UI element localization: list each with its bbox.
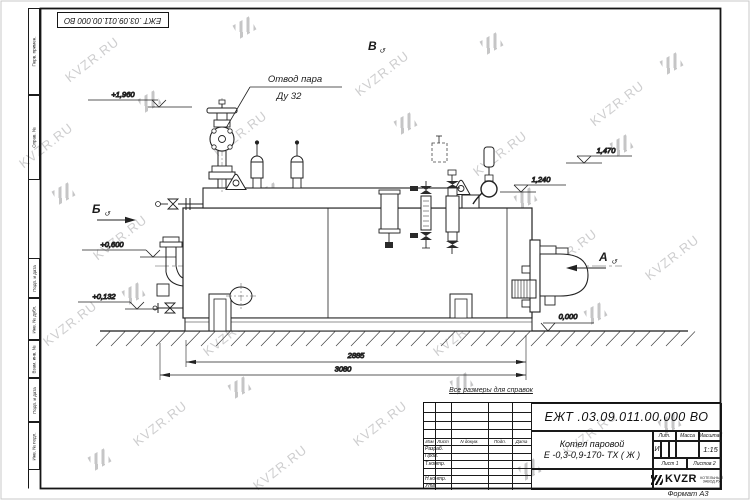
level-column-2 — [446, 170, 459, 254]
row-razrab: Разраб. — [424, 445, 451, 453]
burner-housing — [540, 254, 588, 296]
frame-box-inv-dubl: Инв. № дубл. — [28, 298, 40, 340]
support-leg-left — [209, 294, 231, 331]
top-designation-text: ЕЖТ .03.09.011.00.000 ВО — [64, 16, 161, 25]
svg-text:А: А — [598, 250, 608, 264]
view-marker-b-top: В ↺ — [368, 39, 386, 55]
sheet-cell: Лист 1 — [653, 458, 687, 469]
frame-box-perv-primen: Перв. примен. — [28, 8, 40, 95]
svg-text:+0,132: +0,132 — [92, 292, 116, 301]
company-logo: KVZR КОТЕЛЬНЫЙЗАВОД.РУ — [653, 469, 722, 490]
frame-box-vzam-inv: Взам. инв. № — [28, 340, 40, 378]
title-block-designation: ЕЖТ .03.09.011.00.000 ВО — [531, 403, 722, 431]
mass-value — [676, 441, 699, 458]
drain-valve — [153, 303, 183, 313]
rotated-view-icon: ↺ — [104, 211, 111, 218]
dimension-3080-value: 3080 — [335, 365, 353, 374]
col-ndocum: N докум. — [451, 438, 488, 445]
scale-value: 1:15 — [699, 441, 722, 458]
frame-box-inv-podl: Инв. № подл. — [28, 422, 40, 470]
elevation-mark-right-high: 1,470 — [566, 146, 632, 163]
col-izm: Изм — [424, 438, 435, 445]
top-designation-box: ЕЖТ .03.09.011.00.000 ВО — [57, 12, 169, 28]
siphon-loop — [481, 181, 497, 197]
elevation-mark-right-mid: 1,240 — [500, 175, 566, 192]
empty-cell — [531, 469, 653, 490]
format-label: Формат А3 — [648, 489, 728, 498]
view-arrow-right-icon — [125, 217, 136, 223]
safety-valve-2 — [291, 141, 303, 188]
steam-outlet-label: Отвод пара Ду 32 — [226, 74, 342, 128]
col-podp: Подп. — [488, 438, 512, 445]
frame-box-podp-data-1: Подп. и дата — [28, 258, 40, 298]
elevation-mark-left-low: +0,132 — [78, 292, 158, 309]
svg-text:1,240: 1,240 — [532, 175, 552, 184]
svg-text:Отвод пара: Отвод пара — [268, 74, 322, 85]
burner-mount-plate — [530, 240, 540, 312]
rotated-view-icon: ↺ — [611, 259, 618, 266]
top-shoulder — [462, 195, 479, 208]
view-marker-b-left: Б ↺ — [92, 202, 136, 223]
scale-header: Масштаб — [699, 431, 722, 441]
drawing-sheet: KVZR.RUKVZR.RUKVZR.RUKVZR.RUKVZR.RUKVZR.… — [0, 0, 750, 500]
dimension-3080: 3080 — [160, 343, 526, 380]
sheets-cell: Листов 2 — [687, 458, 722, 469]
lit-value: И — [653, 441, 661, 458]
base-skid — [185, 318, 532, 331]
reference-note: Все размеры для справок — [430, 387, 552, 394]
support-leg-right — [450, 294, 472, 318]
blowdown-elbow — [157, 237, 183, 296]
col-list: Лист — [435, 438, 451, 445]
safety-valve-1 — [251, 141, 263, 188]
svg-text:1,470: 1,470 — [597, 146, 617, 155]
col-data: Дата — [512, 438, 531, 445]
elevation-mark-ground: 0,000 — [541, 312, 594, 331]
title-block: Изм Лист N докум. Подп. Дата Разраб. Про… — [423, 402, 721, 489]
dimension-2885-value: 2885 — [347, 351, 366, 360]
rotated-view-icon: ↺ — [379, 48, 386, 55]
handwheel — [207, 108, 237, 113]
lit-header: Лит. — [653, 431, 676, 441]
elevation-mark-valve-top: +1,960 — [88, 90, 192, 107]
row-nkontr: Н.контр. — [424, 475, 451, 483]
boiler-shell — [183, 188, 532, 331]
pipe-flange — [209, 172, 235, 179]
svg-text:0,000: 0,000 — [559, 312, 579, 321]
kvzr-logo-icon — [651, 475, 663, 485]
row-prov: Пров. — [424, 453, 451, 461]
row-tkontr: Т.контр. — [424, 460, 451, 468]
product-name: Котел паровой Е -0,3-0,9-170- ТХ ( Ж ) — [531, 431, 653, 469]
frame-box-podp-data-2: Подп. и дата — [28, 378, 40, 422]
frame-box-sprav-no: Справ. № — [28, 95, 40, 180]
hidden-component-outline — [432, 136, 447, 162]
svg-text:Ду 32: Ду 32 — [276, 91, 302, 102]
svg-text:+0,600: +0,600 — [100, 240, 124, 249]
svg-text:В: В — [368, 39, 377, 53]
row-utv: Утв. — [424, 483, 451, 491]
mass-header: Масса — [676, 431, 699, 441]
svg-text:+1,960: +1,960 — [111, 90, 135, 99]
svg-text:Б: Б — [92, 202, 101, 216]
